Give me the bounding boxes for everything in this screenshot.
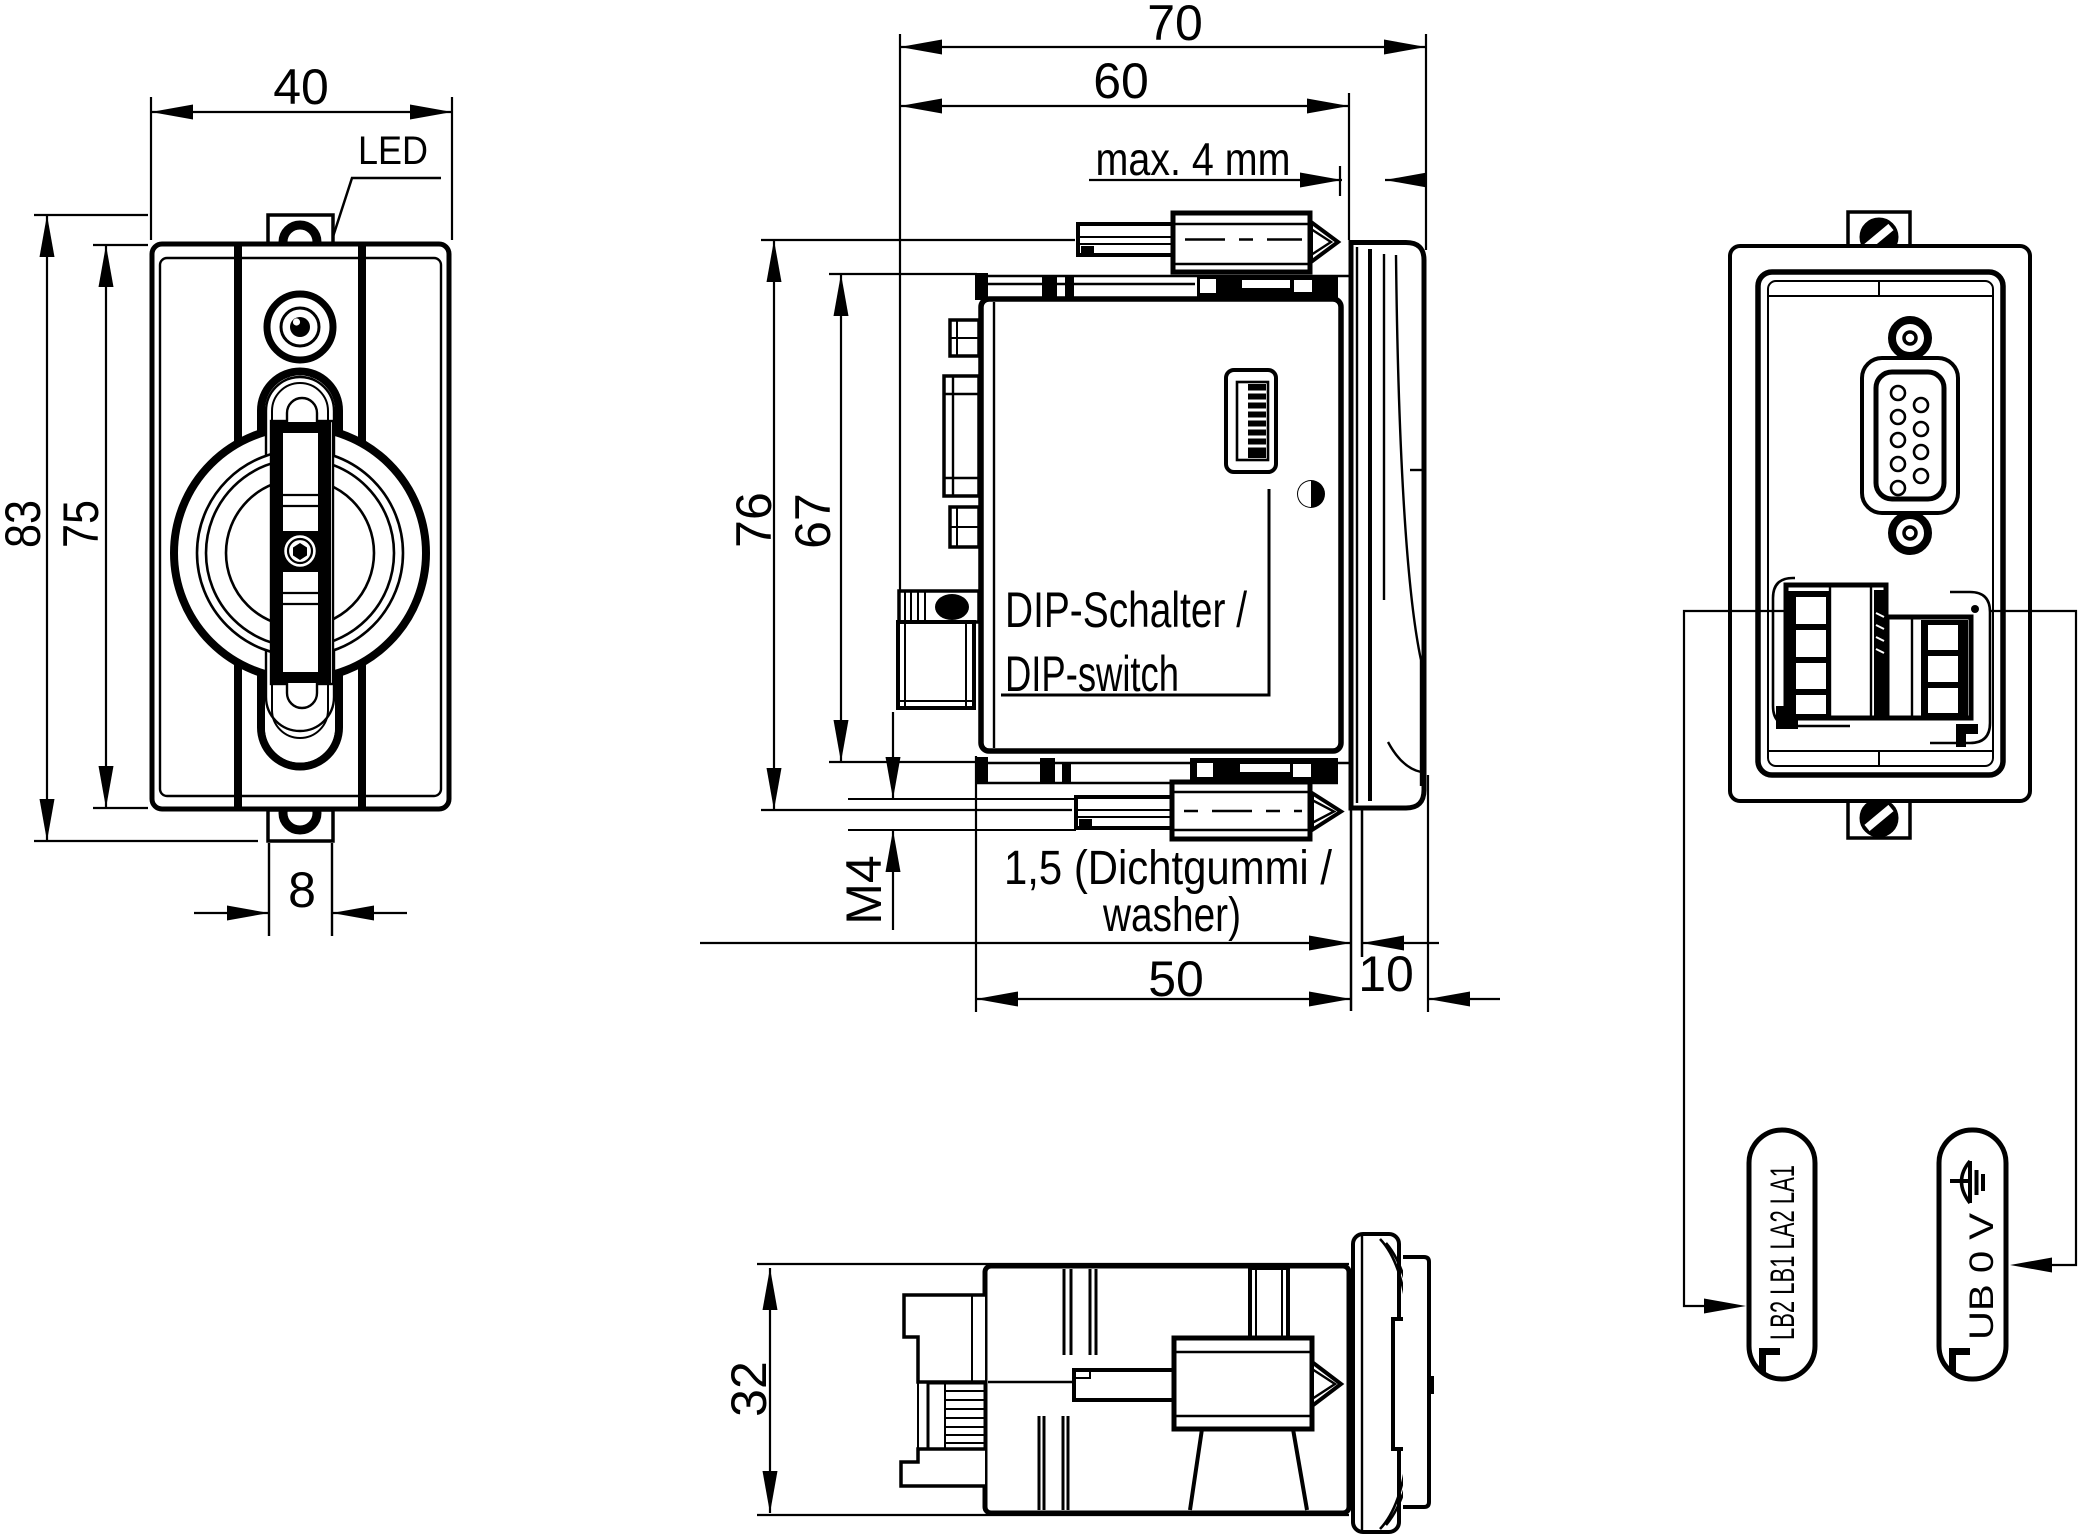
svg-text:40: 40 <box>273 59 329 115</box>
svg-text:60: 60 <box>1093 53 1149 109</box>
svg-text:1,5 (Dichtgummi /: 1,5 (Dichtgummi / <box>1004 842 1333 895</box>
svg-text:DIP-switch: DIP-switch <box>1005 646 1179 702</box>
svg-text:LED: LED <box>358 129 428 173</box>
svg-text:LB2 LB1 LA2 LA1: LB2 LB1 LA2 LA1 <box>1764 1165 1802 1340</box>
svg-text:10: 10 <box>1358 946 1414 1002</box>
svg-text:8: 8 <box>288 862 316 918</box>
svg-text:75: 75 <box>53 500 109 548</box>
svg-text:max. 4 mm: max. 4 mm <box>1096 133 1291 185</box>
svg-text:washer): washer) <box>1102 889 1241 942</box>
svg-text:67: 67 <box>785 493 841 549</box>
svg-text:32: 32 <box>721 1361 777 1417</box>
svg-text:UB 0 V: UB 0 V <box>1963 1213 2001 1340</box>
svg-text:83: 83 <box>0 500 51 548</box>
svg-text:70: 70 <box>1147 0 1203 51</box>
svg-text:DIP-Schalter /: DIP-Schalter / <box>1005 582 1247 638</box>
svg-text:M4: M4 <box>836 855 892 924</box>
